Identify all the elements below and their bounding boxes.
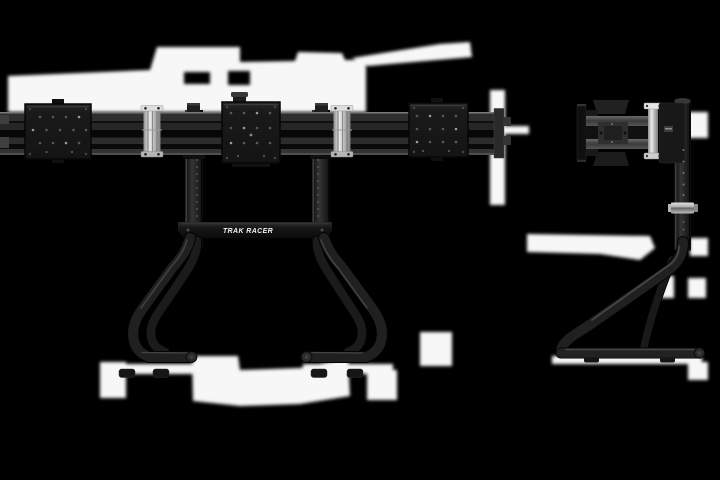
crossbar-top-edge bbox=[181, 223, 329, 224]
clamp-left-bolt-1 bbox=[144, 107, 147, 110]
side-clamp-bolt-3 bbox=[646, 155, 648, 157]
side-clamp-bolt-1 bbox=[646, 105, 648, 107]
rail-clamp-left bbox=[141, 106, 163, 158]
side-view bbox=[561, 98, 705, 363]
crossbar: TRAK RACER bbox=[178, 222, 332, 238]
clamp-left-bolt-2 bbox=[157, 107, 160, 110]
brand-label: TRAK RACER bbox=[223, 228, 273, 235]
knob-cap bbox=[231, 92, 248, 97]
leg-left-front-tube bbox=[133, 238, 191, 357]
plate-left-bevel bbox=[27, 106, 89, 107]
post-side bbox=[659, 98, 691, 251]
clamp-right-bolt-4 bbox=[347, 153, 350, 156]
leg-side bbox=[561, 242, 699, 353]
plate-right-body bbox=[409, 103, 468, 157]
side-top-tab bbox=[593, 100, 629, 114]
leg-left-pad-2 bbox=[153, 369, 169, 378]
side-dot-1 bbox=[611, 123, 613, 125]
leg-left bbox=[133, 238, 197, 357]
blob-side-low-b bbox=[688, 278, 706, 298]
leg-left-pad-1 bbox=[119, 369, 135, 378]
side-bolt-2 bbox=[624, 132, 627, 135]
blob-foot-right-a bbox=[367, 370, 397, 400]
rail-right-end bbox=[494, 109, 504, 158]
clamp-right-bolt-2 bbox=[347, 107, 350, 110]
leg-right-pad-2 bbox=[347, 369, 363, 378]
vesa-plate-right bbox=[409, 98, 468, 161]
plate-left-body bbox=[25, 104, 91, 159]
side-block-badge-mark bbox=[665, 128, 672, 130]
blob-foot-right-b bbox=[420, 332, 452, 366]
ring-nub-right bbox=[694, 204, 698, 212]
rail-clamp-right bbox=[331, 106, 353, 158]
side-post-shadow bbox=[689, 104, 690, 249]
clamp-left-bolt-4 bbox=[157, 153, 160, 156]
vesa-side-bracket bbox=[577, 100, 654, 166]
side-foot-cap-inner bbox=[698, 351, 702, 355]
blob-side-mid bbox=[527, 234, 655, 260]
rail-right-tab-2 bbox=[503, 136, 511, 145]
leg-right-foot-highlight bbox=[312, 353, 362, 354]
blob-side-mid-right bbox=[690, 238, 708, 256]
side-clamp-body bbox=[648, 105, 658, 157]
side-center-inner bbox=[604, 126, 622, 140]
rail-left-tab-2 bbox=[0, 137, 9, 148]
post-left-top-cap bbox=[187, 103, 200, 106]
plate-center-body bbox=[222, 102, 280, 163]
side-pad-1 bbox=[584, 358, 599, 363]
ring-clamp bbox=[668, 203, 698, 214]
leg-left-foot-highlight bbox=[142, 353, 188, 354]
clamp-right-bolt-3 bbox=[334, 153, 337, 156]
vesa-plate-left bbox=[25, 99, 91, 163]
post-right-top-cap bbox=[315, 103, 328, 106]
plate-right-bevel bbox=[411, 105, 466, 106]
leg-right-foot-cap-inner bbox=[305, 355, 309, 359]
plate-center-bevel bbox=[224, 104, 278, 105]
vesa-plate-center bbox=[222, 102, 280, 167]
leg-right-pad-1 bbox=[311, 369, 327, 378]
side-dot-2 bbox=[611, 141, 613, 143]
rail-left-tab-1 bbox=[0, 115, 9, 124]
product-render: TRAK RACER bbox=[0, 0, 720, 480]
side-bolt-1 bbox=[600, 132, 603, 135]
crossbar-bolt-left bbox=[187, 229, 190, 232]
rail-right-tab-1 bbox=[503, 117, 511, 126]
blob-top-right-wisp bbox=[352, 42, 472, 66]
side-bottom-tab bbox=[593, 152, 629, 166]
clamp-right-bolt-1 bbox=[334, 107, 337, 110]
blob-side-foot-right bbox=[688, 362, 708, 380]
clamp-left-bolt-3 bbox=[144, 153, 147, 156]
crossbar-bolt-right bbox=[321, 229, 324, 232]
leg-left-foot-cap-inner bbox=[190, 355, 194, 359]
side-plate-bar bbox=[577, 106, 586, 160]
leg-right bbox=[307, 238, 382, 357]
side-mount-block bbox=[659, 103, 685, 163]
product-image-canvas: TRAK RACER bbox=[0, 0, 720, 480]
blob-bottom-left bbox=[192, 356, 350, 406]
side-pad-2 bbox=[660, 358, 675, 363]
